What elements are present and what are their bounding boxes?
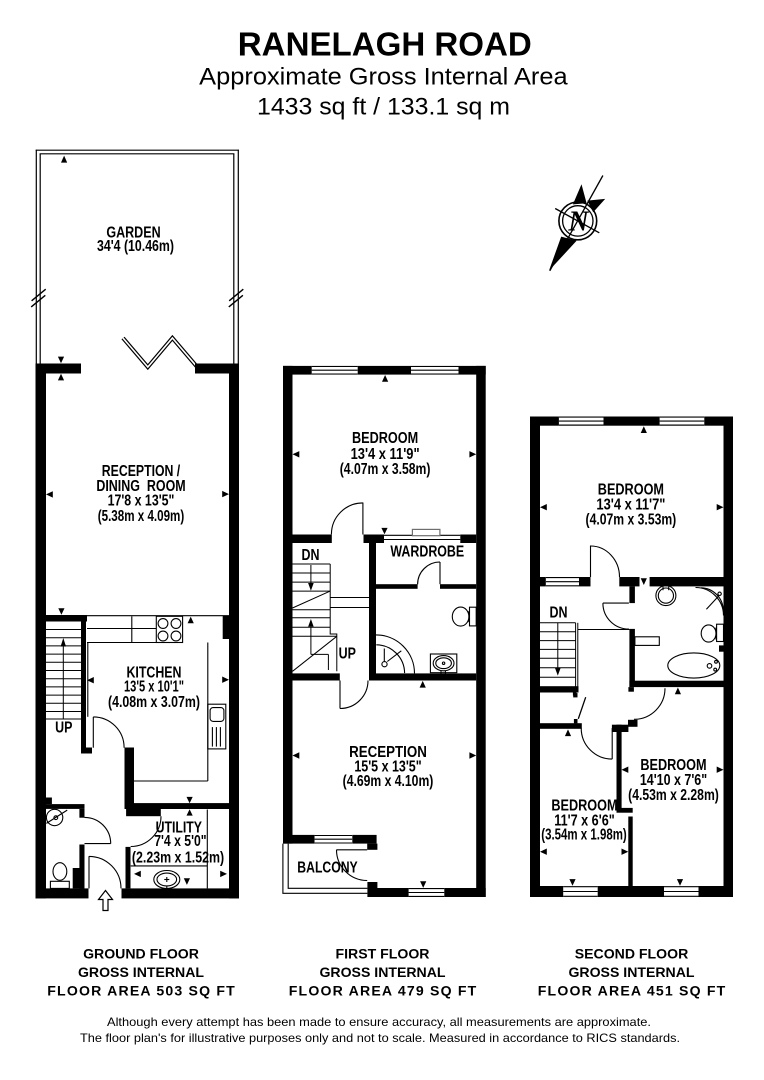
svg-text:FIRST FLOOR: FIRST FLOOR — [336, 946, 430, 962]
svg-text:(4.07m x 3.58m): (4.07m x 3.58m) — [340, 461, 431, 478]
svg-text:GROSS INTERNAL: GROSS INTERNAL — [78, 964, 204, 980]
svg-text:(3.54m x 1.98m): (3.54m x 1.98m) — [541, 827, 627, 844]
svg-text:BEDROOM: BEDROOM — [352, 430, 418, 447]
svg-text:FLOOR AREA 479 SQ FT: FLOOR AREA 479 SQ FT — [289, 983, 477, 999]
svg-text:UP: UP — [55, 719, 72, 736]
svg-text:N: N — [567, 207, 590, 238]
svg-text:(4.53m x 2.28m): (4.53m x 2.28m) — [628, 787, 719, 804]
svg-text:1433 sq ft / 133.1 sq m: 1433 sq ft / 133.1 sq m — [257, 93, 510, 120]
svg-text:UP: UP — [339, 646, 356, 663]
svg-text:(2.23m x 1.52m): (2.23m x 1.52m) — [132, 850, 224, 867]
svg-text:FLOOR AREA 503 SQ FT: FLOOR AREA 503 SQ FT — [47, 983, 235, 999]
svg-text:7'4 x 5'0": 7'4 x 5'0" — [154, 833, 206, 850]
svg-text:WARDROBE: WARDROBE — [390, 544, 464, 561]
svg-text:GROSS INTERNAL: GROSS INTERNAL — [319, 964, 445, 980]
svg-text:(5.38m x 4.09m): (5.38m x 4.09m) — [98, 508, 185, 525]
svg-text:(4.69m x 4.10m): (4.69m x 4.10m) — [343, 773, 434, 790]
svg-text:GROUND FLOOR: GROUND FLOOR — [83, 946, 199, 962]
svg-text:Although every attempt has bee: Although every attempt has been made to … — [107, 1016, 651, 1029]
svg-text:FLOOR AREA 451 SQ FT: FLOOR AREA 451 SQ FT — [538, 983, 726, 999]
svg-text:(4.07m x 3.53m): (4.07m x 3.53m) — [586, 512, 677, 529]
svg-text:13'5 x 10'1": 13'5 x 10'1" — [124, 679, 184, 696]
svg-text:34'4 (10.46m): 34'4 (10.46m) — [97, 238, 174, 255]
svg-text:SECOND FLOOR: SECOND FLOOR — [575, 946, 689, 962]
svg-text:Approximate Gross Internal Are: Approximate Gross Internal Area — [199, 63, 568, 90]
svg-text:DN: DN — [302, 547, 320, 564]
svg-text:The floor plan's for illustrat: The floor plan's for illustrative purpos… — [80, 1032, 680, 1045]
svg-text:GROSS INTERNAL: GROSS INTERNAL — [568, 964, 694, 980]
svg-text:DN: DN — [550, 604, 568, 621]
svg-text:(4.08m x 3.07m): (4.08m x 3.07m) — [108, 694, 200, 711]
svg-text:BALCONY: BALCONY — [297, 859, 358, 876]
svg-text:RANELAGH ROAD: RANELAGH ROAD — [238, 26, 532, 63]
